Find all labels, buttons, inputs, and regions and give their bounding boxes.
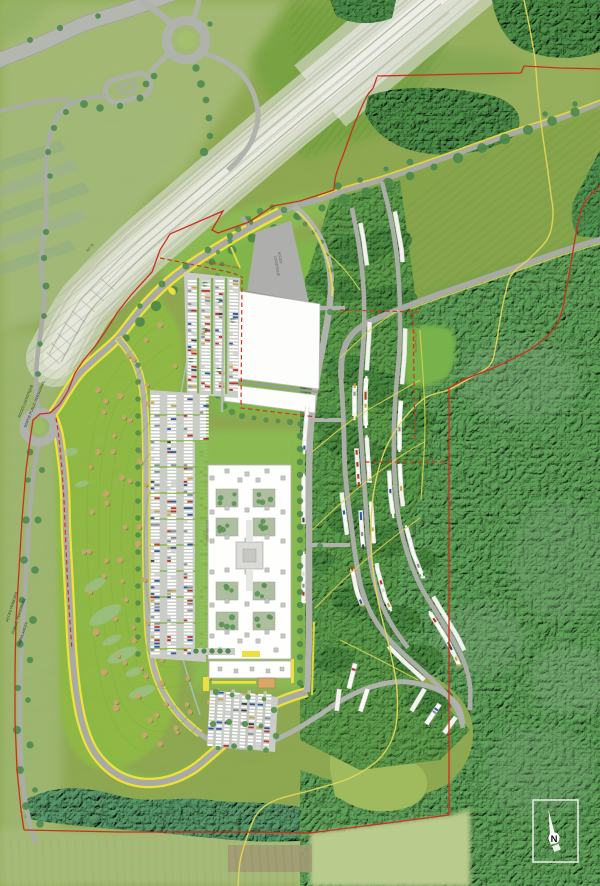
svg-text:N: N [551, 834, 558, 845]
svg-text:ACCUEIL MED: ACCUEIL MED [205, 520, 209, 542]
svg-text:LOTS MARCHE: LOTS MARCHE [413, 330, 418, 353]
